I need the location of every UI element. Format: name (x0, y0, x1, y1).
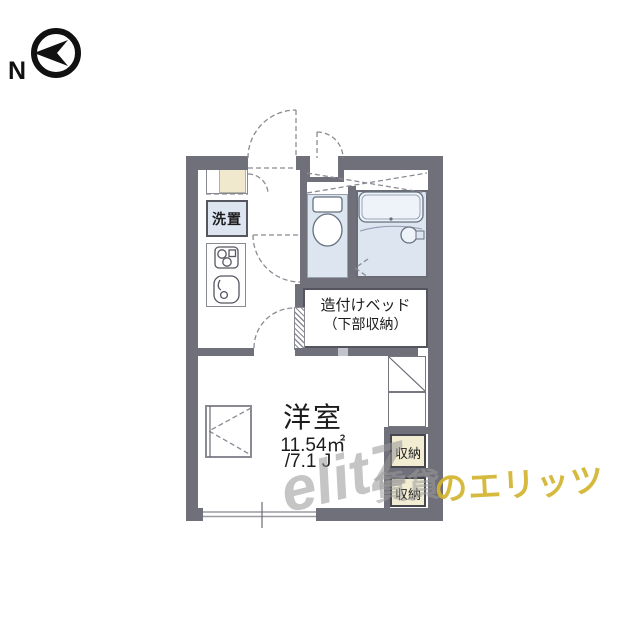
floor-plan-page: N (0, 0, 640, 640)
room-door-arc (254, 308, 294, 348)
toilet-icon (313, 197, 342, 246)
meter-box-door-arc (317, 132, 343, 158)
bathtub-icon (359, 192, 423, 231)
built-in-bed-sublabel: （下部収納） (303, 314, 428, 334)
storage-label-bottom: 収納 (390, 484, 426, 503)
overhead-storage-x (307, 173, 427, 193)
shelf-diagonal-line (389, 357, 425, 391)
main-room-area-tatami: /7.1 J (248, 451, 368, 473)
storage-label-top: 収納 (390, 443, 426, 462)
entrance-door-arc (248, 110, 296, 158)
built-in-bed-label: 造付けベッド (303, 294, 428, 315)
corridor-door-arc (253, 235, 300, 282)
laundry-label: 洗置 (206, 209, 248, 229)
bath-folding-door-icon (355, 259, 368, 277)
bath-faucet-icon (401, 227, 424, 243)
entry-step-arc (248, 174, 268, 194)
refrigerator-chevron (209, 408, 251, 455)
stove-icon (215, 247, 238, 268)
sink-icon (214, 276, 239, 303)
compass-icon (34, 31, 78, 75)
